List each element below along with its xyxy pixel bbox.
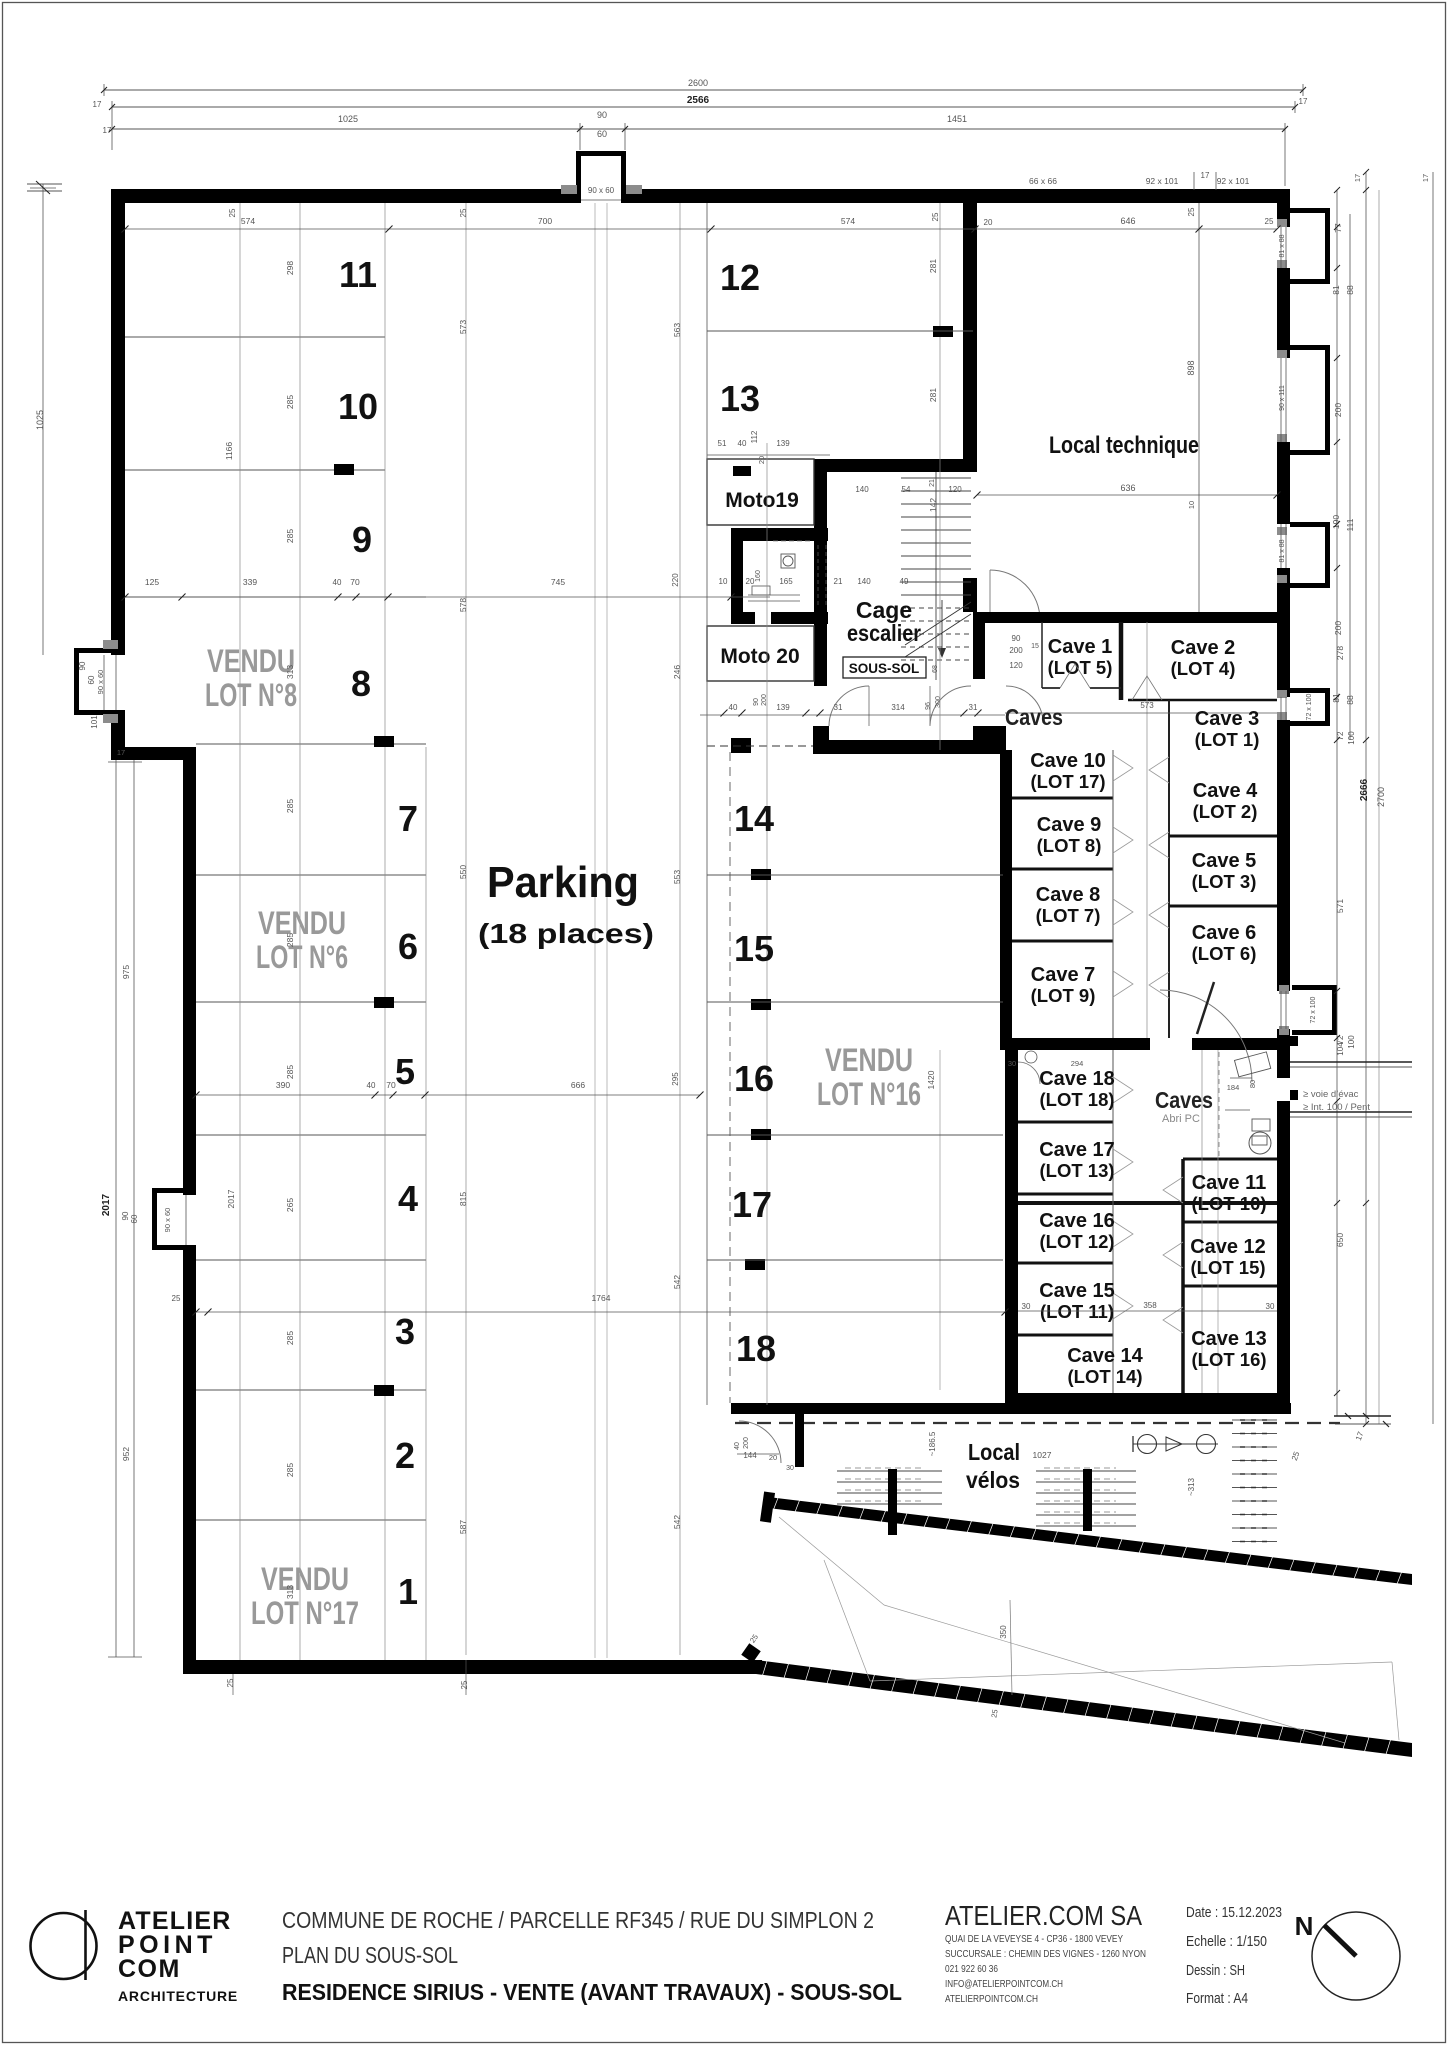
svg-text:(LOT 6): (LOT 6)	[1192, 943, 1257, 964]
svg-text:563: 563	[672, 323, 682, 337]
svg-text:112: 112	[750, 430, 759, 443]
svg-text:92 x 101: 92 x 101	[1146, 176, 1179, 186]
svg-text:298: 298	[285, 261, 295, 275]
svg-text:Cave 10: Cave 10	[1030, 750, 1106, 772]
svg-text:578: 578	[458, 598, 468, 612]
svg-text:COM: COM	[118, 1955, 181, 1983]
svg-text:VENDU: VENDU	[261, 1561, 349, 1597]
svg-text:1025: 1025	[35, 410, 45, 430]
svg-text:(LOT 14): (LOT 14)	[1067, 1366, 1142, 1387]
svg-text:(LOT 5): (LOT 5)	[1048, 657, 1113, 678]
svg-text:25: 25	[228, 208, 237, 217]
svg-text:Parking: Parking	[487, 858, 639, 907]
svg-text:101: 101	[90, 715, 99, 729]
svg-text:70: 70	[350, 577, 360, 587]
svg-text:14: 14	[734, 798, 774, 839]
svg-text:Cave 1: Cave 1	[1048, 636, 1113, 658]
svg-text:Echelle : 1/150: Echelle : 1/150	[1186, 1933, 1267, 1950]
svg-text:285: 285	[285, 1463, 295, 1477]
svg-text:40: 40	[738, 439, 747, 448]
svg-text:17: 17	[93, 100, 102, 109]
svg-text:Caves: Caves	[1155, 1087, 1213, 1113]
svg-text:285: 285	[285, 799, 295, 813]
svg-text:Cave 17: Cave 17	[1039, 1139, 1115, 1161]
svg-text:88: 88	[1345, 285, 1355, 295]
svg-text:140: 140	[857, 577, 871, 586]
svg-text:≥ Int. 100 / Pent: ≥ Int. 100 / Pent	[1303, 1102, 1370, 1113]
svg-text:125: 125	[145, 577, 159, 587]
svg-text:Date : 15.12.2023: Date : 15.12.2023	[1186, 1904, 1282, 1921]
svg-text:Cave 11: Cave 11	[1192, 1172, 1267, 1194]
svg-text:Cave 8: Cave 8	[1036, 884, 1101, 906]
svg-text:Format : A4: Format : A4	[1186, 1990, 1248, 2007]
svg-text:88: 88	[1345, 695, 1355, 705]
svg-text:295: 295	[671, 1072, 680, 1086]
svg-text:1764: 1764	[592, 1293, 611, 1303]
svg-text:54: 54	[902, 485, 911, 494]
svg-text:10: 10	[1187, 501, 1196, 509]
svg-text:2017: 2017	[101, 1193, 112, 1216]
svg-text:90 x 60: 90 x 60	[588, 186, 615, 195]
svg-text:VENDU: VENDU	[207, 643, 295, 679]
svg-text:30: 30	[786, 1465, 794, 1472]
svg-text:81 x 88: 81 x 88	[1279, 539, 1286, 562]
svg-text:574: 574	[841, 216, 855, 226]
svg-text:294: 294	[1071, 1059, 1084, 1068]
svg-text:11: 11	[339, 254, 377, 295]
svg-text:200: 200	[761, 694, 768, 706]
svg-text:285: 285	[285, 395, 295, 409]
svg-text:40: 40	[729, 703, 738, 712]
svg-text:25: 25	[989, 1709, 999, 1719]
svg-text:25: 25	[1187, 207, 1196, 216]
svg-text:VENDU: VENDU	[825, 1042, 913, 1078]
svg-text:~186.5: ~186.5	[928, 1431, 937, 1456]
svg-text:(LOT 11): (LOT 11)	[1040, 1301, 1114, 1322]
svg-text:1420: 1420	[926, 1070, 936, 1089]
svg-text:975: 975	[121, 965, 131, 979]
svg-text:60: 60	[130, 1214, 139, 1223]
svg-text:Cave 7: Cave 7	[1031, 964, 1096, 986]
svg-text:(LOT 4): (LOT 4)	[1171, 658, 1236, 679]
svg-text:3: 3	[395, 1311, 415, 1352]
svg-text:40: 40	[333, 578, 342, 587]
svg-text:184: 184	[1227, 1083, 1240, 1092]
svg-text:Cave 3: Cave 3	[1195, 708, 1260, 730]
svg-text:81: 81	[1331, 285, 1341, 295]
svg-text:60: 60	[597, 129, 607, 139]
svg-text:ATELIERPOINTCOM.CH: ATELIERPOINTCOM.CH	[945, 1993, 1038, 2005]
svg-text:1166: 1166	[224, 442, 234, 461]
svg-text:142: 142	[928, 498, 938, 512]
svg-text:300: 300	[935, 696, 942, 708]
svg-text:SUCCURSALE : CHEMIN DES VIGNES: SUCCURSALE : CHEMIN DES VIGNES - 1260 NY…	[945, 1948, 1146, 1960]
svg-text:120: 120	[1009, 661, 1023, 670]
svg-text:~313: ~313	[1187, 1477, 1196, 1496]
svg-text:Dessin : SH: Dessin : SH	[1186, 1962, 1245, 1979]
svg-text:Moto 20: Moto 20	[720, 645, 799, 668]
svg-text:Local technique: Local technique	[1049, 432, 1199, 459]
svg-text:25: 25	[931, 212, 940, 221]
svg-text:INFO@ATELIERPOINTCOM.CH: INFO@ATELIERPOINTCOM.CH	[945, 1978, 1063, 1990]
svg-text:700: 700	[538, 216, 552, 226]
svg-text:25: 25	[460, 1680, 469, 1689]
svg-text:542: 542	[672, 1275, 682, 1289]
svg-text:200: 200	[1333, 403, 1343, 417]
svg-text:17: 17	[117, 748, 125, 757]
svg-text:160: 160	[755, 570, 762, 582]
svg-text:(LOT 13): (LOT 13)	[1039, 1160, 1114, 1181]
svg-text:Cave 15: Cave 15	[1039, 1280, 1115, 1302]
svg-text:7: 7	[398, 798, 418, 839]
svg-text:1025: 1025	[338, 114, 358, 124]
svg-text:68: 68	[932, 665, 939, 673]
svg-text:666: 666	[571, 1080, 585, 1090]
svg-text:(LOT 1): (LOT 1)	[1195, 729, 1260, 750]
svg-text:358: 358	[1143, 1301, 1157, 1310]
svg-text:49: 49	[900, 577, 909, 586]
svg-text:COMMUNE DE ROCHE / PARCELLE RF: COMMUNE DE ROCHE / PARCELLE RF345 / RUE …	[282, 1907, 874, 1933]
svg-text:LOT N°6: LOT N°6	[256, 939, 348, 975]
svg-text:815: 815	[458, 1192, 468, 1206]
svg-text:escalier: escalier	[847, 620, 921, 646]
svg-text:10: 10	[719, 577, 728, 586]
svg-text:20: 20	[984, 218, 993, 227]
svg-text:(LOT 16): (LOT 16)	[1191, 1349, 1266, 1370]
svg-text:17: 17	[732, 1184, 772, 1225]
svg-text:281: 281	[928, 388, 938, 402]
svg-text:2700: 2700	[1376, 787, 1386, 807]
svg-text:587: 587	[458, 1520, 468, 1534]
svg-text:10: 10	[338, 386, 378, 427]
svg-text:550: 550	[458, 865, 468, 879]
svg-text:RESIDENCE SIRIUS - VENTE (AVAN: RESIDENCE SIRIUS - VENTE (AVANT TRAVAUX)…	[282, 1979, 902, 2005]
svg-text:LOT N°16: LOT N°16	[817, 1076, 921, 1112]
svg-text:553: 553	[672, 870, 682, 884]
svg-text:30: 30	[1266, 1302, 1275, 1311]
svg-text:18: 18	[736, 1328, 776, 1369]
svg-text:2: 2	[395, 1435, 415, 1476]
svg-text:(18 places): (18 places)	[478, 918, 654, 949]
svg-text:1027: 1027	[1033, 1450, 1052, 1460]
svg-text:90 x 60: 90 x 60	[163, 1208, 172, 1233]
svg-text:144: 144	[743, 1451, 757, 1460]
svg-text:339: 339	[243, 577, 257, 587]
svg-text:9: 9	[352, 519, 372, 560]
svg-text:80: 80	[1248, 1080, 1257, 1088]
svg-text:100: 100	[1347, 1035, 1356, 1049]
svg-text:ATELIER.COM SA: ATELIER.COM SA	[945, 1900, 1142, 1931]
svg-text:165: 165	[779, 577, 793, 586]
svg-text:139: 139	[776, 703, 790, 712]
svg-text:Cave 5: Cave 5	[1192, 850, 1257, 872]
svg-text:≥ voie d’évac: ≥ voie d’évac	[1303, 1089, 1359, 1100]
svg-text:200: 200	[1009, 646, 1023, 655]
svg-text:139: 139	[776, 439, 790, 448]
svg-text:636: 636	[1120, 483, 1135, 493]
svg-text:92 x 101: 92 x 101	[1217, 176, 1250, 186]
svg-text:265: 265	[285, 1198, 295, 1212]
svg-text:30: 30	[1008, 1059, 1016, 1068]
svg-text:(LOT 10): (LOT 10)	[1191, 1193, 1266, 1214]
svg-text:278: 278	[1335, 646, 1345, 660]
svg-text:Cave 14: Cave 14	[1067, 1345, 1143, 1367]
svg-text:(LOT 3): (LOT 3)	[1192, 871, 1257, 892]
svg-text:(LOT 15): (LOT 15)	[1190, 1257, 1265, 1278]
svg-text:16: 16	[734, 1058, 774, 1099]
svg-text:ARCHITECTURE: ARCHITECTURE	[118, 1988, 238, 2004]
svg-text:573: 573	[1140, 701, 1154, 710]
svg-text:PLAN DU SOUS-SOL: PLAN DU SOUS-SOL	[282, 1942, 458, 1968]
svg-text:25: 25	[172, 1294, 181, 1303]
svg-text:70: 70	[386, 1080, 396, 1090]
svg-text:Cave 9: Cave 9	[1037, 814, 1102, 836]
svg-text:111: 111	[1345, 518, 1355, 531]
svg-text:12: 12	[720, 257, 760, 298]
svg-text:21: 21	[929, 479, 936, 487]
svg-text:104: 104	[1336, 1042, 1345, 1056]
svg-text:281: 281	[928, 259, 938, 273]
svg-text:Local: Local	[968, 1439, 1020, 1465]
svg-text:021 922 60 36: 021 922 60 36	[945, 1963, 998, 1975]
svg-text:N: N	[1295, 1911, 1314, 1941]
svg-text:Caves: Caves	[1005, 704, 1063, 730]
svg-text:200: 200	[743, 1437, 750, 1449]
svg-text:2666: 2666	[1359, 778, 1370, 801]
svg-text:285: 285	[285, 933, 295, 947]
svg-text:40: 40	[734, 1442, 741, 1450]
svg-text:17: 17	[1201, 171, 1210, 180]
svg-text:90: 90	[597, 110, 607, 120]
svg-text:90: 90	[753, 698, 760, 706]
svg-text:vélos: vélos	[966, 1467, 1020, 1493]
svg-text:571: 571	[1335, 899, 1345, 913]
svg-text:40: 40	[367, 1081, 376, 1090]
svg-text:60: 60	[87, 675, 96, 684]
svg-text:66 x 66: 66 x 66	[1029, 176, 1057, 186]
svg-text:Cave 16: Cave 16	[1039, 1210, 1115, 1232]
svg-text:100: 100	[1347, 731, 1356, 745]
svg-text:350: 350	[999, 1625, 1008, 1639]
svg-text:285: 285	[285, 1331, 295, 1345]
svg-text:5: 5	[395, 1051, 415, 1092]
svg-text:SOUS-SOL: SOUS-SOL	[849, 661, 920, 676]
svg-text:20: 20	[746, 577, 755, 586]
svg-text:Abri PC: Abri PC	[1162, 1113, 1200, 1125]
svg-text:(LOT 12): (LOT 12)	[1039, 1231, 1114, 1252]
svg-text:QUAI DE LA VEVEYSE 4 - CP36 -: QUAI DE LA VEVEYSE 4 - CP36 - 1800 VEVEY	[945, 1933, 1123, 1945]
svg-text:4: 4	[398, 1178, 418, 1219]
svg-text:13: 13	[720, 378, 760, 419]
svg-text:15: 15	[1031, 643, 1039, 650]
svg-text:(LOT 2): (LOT 2)	[1193, 801, 1258, 822]
svg-text:8: 8	[351, 663, 371, 704]
svg-text:Cave 13: Cave 13	[1191, 1328, 1267, 1350]
svg-text:Cave 4: Cave 4	[1193, 780, 1258, 802]
svg-text:2600: 2600	[688, 78, 708, 88]
svg-text:(LOT 18): (LOT 18)	[1039, 1089, 1114, 1110]
svg-text:17: 17	[1353, 174, 1362, 182]
svg-text:Moto19: Moto19	[725, 489, 799, 512]
svg-text:Cave 6: Cave 6	[1192, 922, 1257, 944]
svg-text:1451: 1451	[947, 114, 967, 124]
svg-text:140: 140	[855, 485, 869, 494]
svg-text:2566: 2566	[687, 95, 710, 106]
svg-text:25: 25	[226, 1678, 235, 1687]
svg-text:745: 745	[551, 577, 565, 587]
svg-text:314: 314	[891, 703, 905, 712]
svg-text:VENDU: VENDU	[258, 905, 346, 941]
svg-text:(LOT 7): (LOT 7)	[1036, 905, 1101, 926]
svg-text:21: 21	[834, 577, 843, 586]
svg-text:390: 390	[276, 1080, 290, 1090]
svg-text:(LOT 17): (LOT 17)	[1030, 771, 1105, 792]
svg-text:120: 120	[948, 485, 962, 494]
svg-text:17: 17	[1299, 97, 1308, 106]
svg-text:2017: 2017	[226, 1189, 236, 1208]
svg-text:LOT N°17: LOT N°17	[251, 1595, 359, 1631]
svg-text:90: 90	[121, 1211, 130, 1220]
svg-text:220: 220	[671, 573, 680, 587]
svg-text:51: 51	[718, 439, 727, 448]
svg-text:574: 574	[241, 216, 255, 226]
svg-text:Cave 2: Cave 2	[1171, 637, 1236, 659]
svg-text:646: 646	[1120, 216, 1135, 226]
svg-text:96: 96	[925, 702, 932, 710]
svg-text:77: 77	[1333, 223, 1343, 233]
svg-text:LOT N°8: LOT N°8	[205, 677, 297, 713]
svg-text:20: 20	[757, 456, 766, 464]
svg-text:31: 31	[834, 703, 843, 712]
svg-text:90: 90	[1012, 634, 1021, 643]
svg-text:200: 200	[1333, 621, 1343, 635]
svg-text:81 x 88: 81 x 88	[1279, 234, 1286, 257]
svg-text:246: 246	[672, 665, 682, 679]
svg-text:650: 650	[1335, 1233, 1345, 1247]
svg-text:Cave 12: Cave 12	[1190, 1236, 1266, 1258]
svg-text:542: 542	[672, 1515, 682, 1529]
svg-text:17: 17	[1421, 174, 1430, 182]
svg-text:31: 31	[969, 703, 978, 712]
svg-text:6: 6	[398, 926, 418, 967]
svg-text:1: 1	[398, 1571, 418, 1612]
svg-text:30: 30	[1022, 1302, 1031, 1311]
svg-text:313: 313	[285, 665, 295, 679]
svg-text:72 x 100: 72 x 100	[1306, 693, 1313, 720]
svg-text:898: 898	[1186, 360, 1196, 375]
svg-text:90 x 111: 90 x 111	[1279, 385, 1286, 411]
svg-text:25: 25	[459, 208, 468, 217]
svg-text:573: 573	[458, 320, 468, 334]
svg-text:(LOT 8): (LOT 8)	[1037, 835, 1102, 856]
svg-text:(LOT 9): (LOT 9)	[1031, 985, 1096, 1006]
svg-text:15: 15	[734, 928, 774, 969]
svg-text:313: 313	[285, 1585, 295, 1599]
svg-text:90: 90	[78, 661, 87, 670]
svg-text:952: 952	[121, 1447, 131, 1461]
svg-text:285: 285	[285, 529, 295, 543]
svg-text:72 x 100: 72 x 100	[1310, 996, 1317, 1023]
svg-text:25: 25	[1265, 217, 1274, 226]
svg-text:Cave 18: Cave 18	[1039, 1068, 1115, 1090]
svg-text:285: 285	[285, 1065, 295, 1079]
